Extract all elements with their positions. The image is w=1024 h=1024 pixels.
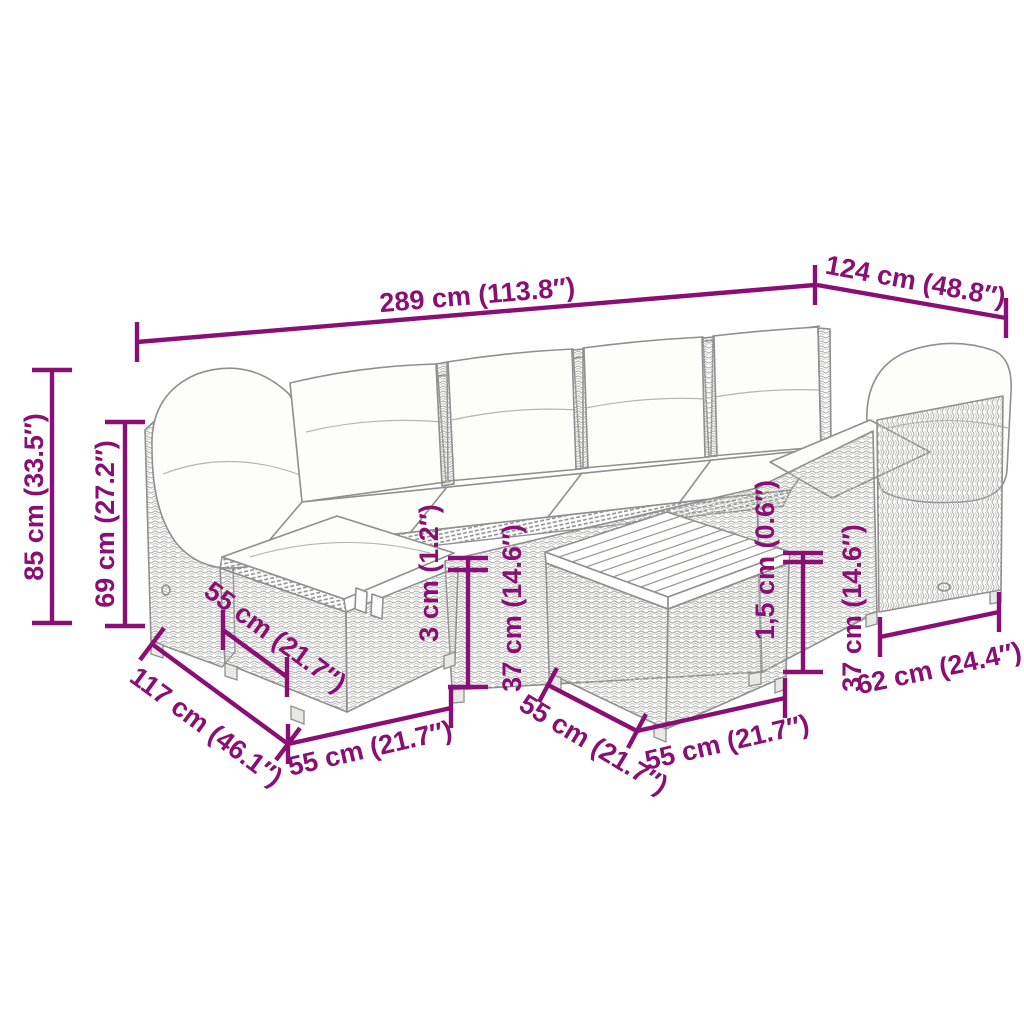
back-strap-3 (702, 337, 717, 457)
dimension-diagram: 289 cm (113.8″) 124 cm (48.8″) 85 cm (33… (0, 0, 1024, 1024)
dim-label-seat-height-right: 37 cm (14.6″) (837, 524, 867, 692)
back-cushion-2 (447, 349, 581, 481)
ottoman-strap-detail (371, 594, 383, 619)
dim-total-height: 85 cm (33.5″) (19, 370, 72, 623)
back-strap-4 (818, 328, 831, 447)
diagram-canvas: 289 cm (113.8″) 124 cm (48.8″) 85 cm (33… (0, 0, 1024, 1024)
dim-label-panel-gap: 1,5 cm (0.6″) (750, 480, 780, 640)
back-cushion-3 (583, 337, 709, 468)
dim-label-total-height: 85 cm (33.5″) (19, 413, 49, 581)
dim-back-height: 69 cm (27.2″) (90, 422, 145, 626)
corner-side-panel (877, 396, 1003, 612)
dim-label-back-height: 69 cm (27.2″) (90, 440, 120, 608)
dim-corner-depth: 124 cm (48.8″) (817, 250, 1008, 338)
back-cushion-4 (711, 327, 821, 456)
dim-ottoman-front-width: 55 cm (21.7″) (285, 688, 455, 782)
ottoman-strap-detail (355, 588, 367, 613)
dim-label-seat-height-left: 37 cm (14.6″) (497, 524, 527, 692)
dim-label-cushion-gap: 3 cm (1.2″) (414, 504, 444, 642)
back-cushion-1 (290, 364, 446, 502)
